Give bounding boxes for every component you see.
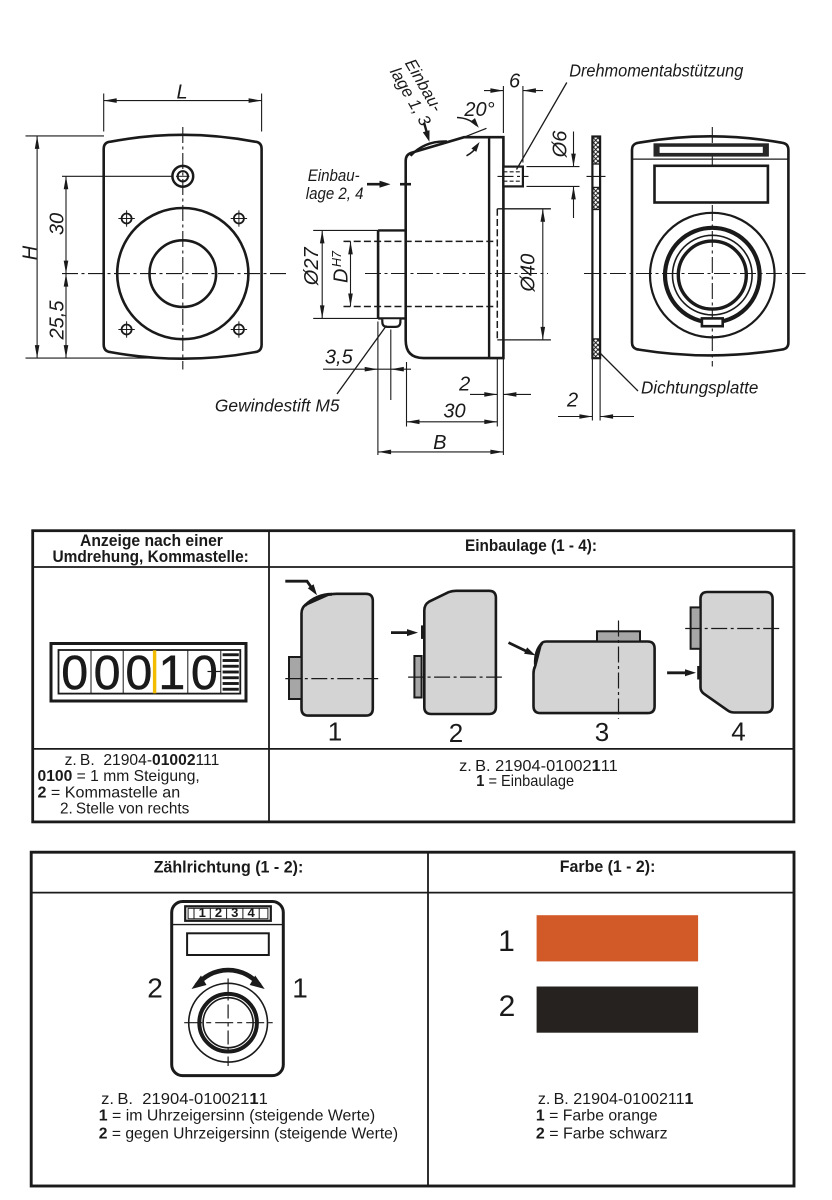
svg-text:0: 0	[61, 647, 88, 700]
svg-text:6: 6	[509, 70, 521, 92]
svg-text:2 = Farbe schwarz: 2 = Farbe schwarz	[536, 1126, 668, 1143]
svg-text:1: 1	[328, 717, 342, 747]
svg-text:30: 30	[443, 401, 465, 423]
svg-text:3,5: 3,5	[325, 347, 354, 369]
svg-text:Einbau-: Einbau-	[308, 166, 360, 185]
svg-text:Drehmomentabstützung: Drehmomentabstützung	[569, 61, 744, 81]
svg-text:2: 2	[499, 990, 516, 1023]
svg-text:H: H	[20, 245, 42, 260]
svg-text:0: 0	[126, 647, 153, 700]
svg-text:2: 2	[566, 390, 578, 412]
svg-text:Ø40: Ø40	[518, 254, 540, 293]
svg-text:z. B. 21904-01002111: z. B. 21904-01002111	[65, 752, 220, 769]
svg-text:1: 1	[159, 647, 186, 700]
svg-text:B: B	[433, 432, 446, 454]
svg-text:DH7: DH7	[330, 250, 353, 283]
svg-text:2: 2	[215, 905, 222, 920]
svg-text:0100 = 1 mm Steigung,: 0100 = 1 mm Steigung,	[38, 768, 200, 785]
svg-text:20°: 20°	[463, 99, 494, 121]
svg-text:25,5: 25,5	[47, 300, 69, 341]
svg-text:Zählrichtung (1 - 2):: Zählrichtung (1 - 2):	[154, 858, 304, 876]
svg-text:0: 0	[94, 647, 121, 700]
svg-text:Dichtungsplatte: Dichtungsplatte	[641, 378, 758, 398]
svg-text:3: 3	[595, 717, 609, 747]
svg-text:3: 3	[231, 905, 238, 920]
svg-text:1: 1	[199, 905, 206, 920]
svg-text:2: 2	[147, 973, 163, 1004]
svg-text:2: 2	[449, 718, 463, 748]
svg-text:Einbaulage (1 - 4):: Einbaulage (1 - 4):	[465, 537, 597, 555]
svg-text:1: 1	[292, 973, 308, 1004]
svg-text:2: 2	[458, 374, 470, 396]
svg-text:1 = Farbe orange: 1 = Farbe orange	[536, 1108, 658, 1125]
svg-text:30: 30	[47, 213, 69, 235]
svg-text:z. B. 21904-01002111: z. B. 21904-01002111	[101, 1091, 268, 1108]
svg-text:Ø6: Ø6	[550, 130, 572, 159]
svg-text:0: 0	[191, 647, 218, 700]
svg-text:4: 4	[731, 717, 745, 747]
svg-text:1 = Einbaulage: 1 = Einbaulage	[476, 773, 574, 790]
svg-text:2 = Kommastelle an: 2 = Kommastelle an	[38, 784, 181, 801]
svg-text:1: 1	[498, 925, 515, 958]
svg-text:lage 2, 4: lage 2, 4	[306, 184, 364, 203]
svg-text:L: L	[176, 82, 187, 104]
svg-text:Farbe (1 - 2):: Farbe (1 - 2):	[560, 858, 656, 876]
svg-text:1 = im Uhrzeigersinn (steigend: 1 = im Uhrzeigersinn (steigende Werte)	[99, 1108, 375, 1125]
svg-text:Umdrehung, Kommastelle:: Umdrehung, Kommastelle:	[53, 548, 249, 566]
svg-text:Gewindestift M5: Gewindestift M5	[215, 396, 340, 416]
svg-text:2. Stelle von rechts: 2. Stelle von rechts	[60, 801, 189, 818]
svg-text:4: 4	[247, 905, 255, 920]
svg-text:z. B. 21904-01002111: z. B. 21904-01002111	[538, 1091, 694, 1108]
svg-text:Ø27: Ø27	[301, 247, 323, 287]
svg-text:2 = gegen Uhrzeigersinn (steig: 2 = gegen Uhrzeigersinn (steigende Werte…	[99, 1126, 398, 1143]
